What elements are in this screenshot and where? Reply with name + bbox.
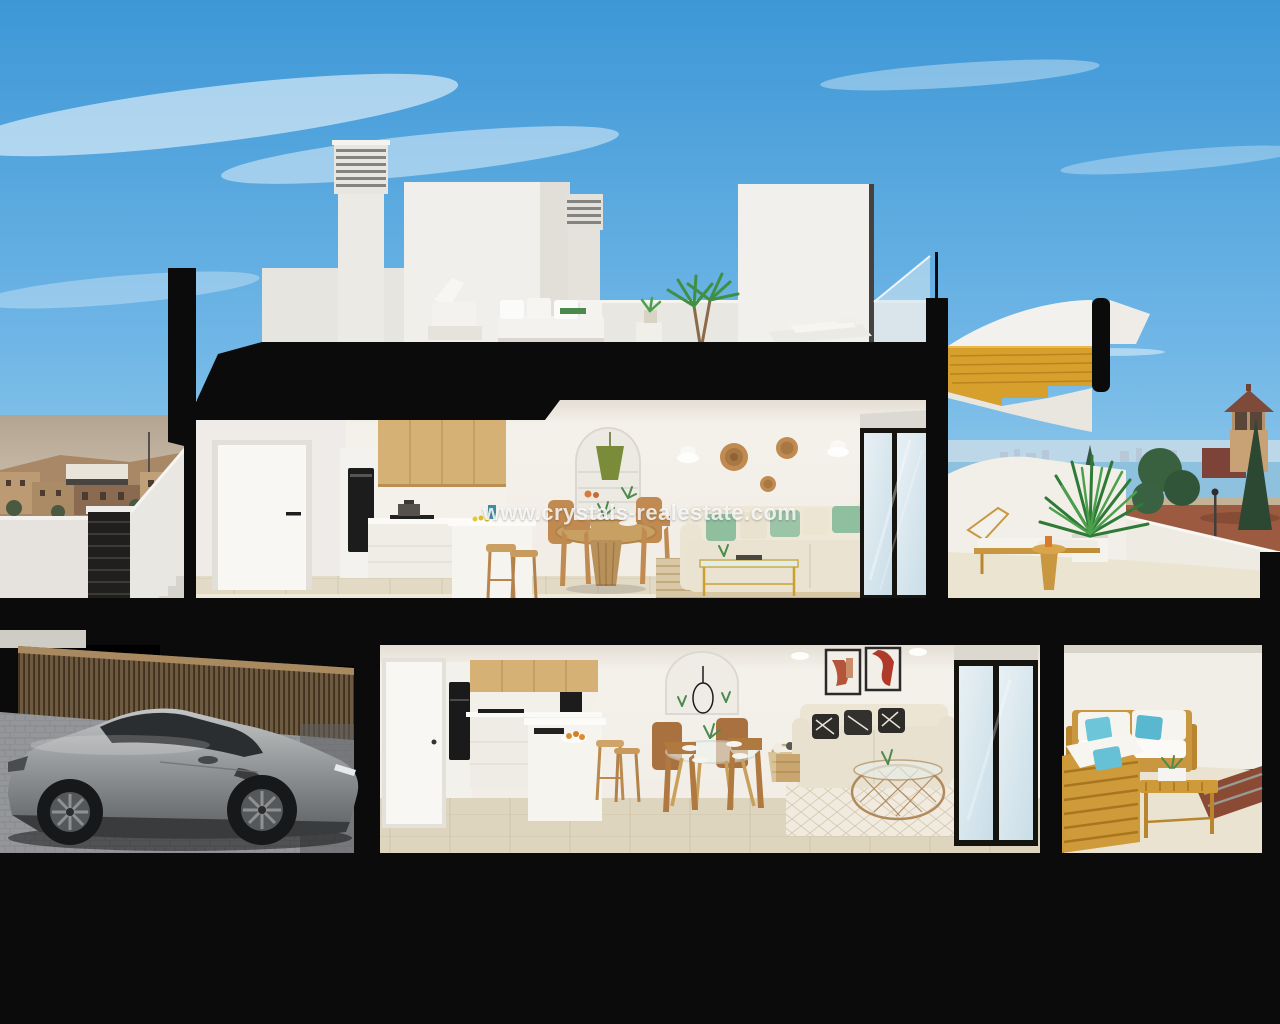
art-frame-1: [826, 650, 860, 694]
table-planter: [1158, 768, 1186, 781]
car-mirror: [198, 756, 218, 764]
car-rear-wheel: [37, 779, 103, 845]
cut-mid-slab: [0, 598, 1280, 645]
car-front-wheel: [227, 775, 297, 845]
cut-stair-column: [1092, 298, 1110, 392]
sconce-ground-left: [791, 652, 809, 660]
render-image: www.crystals-realestate.com: [0, 0, 1280, 1024]
ground-patio: [1062, 645, 1262, 853]
teal-vase: [488, 505, 496, 519]
hall-door: [382, 658, 446, 828]
arch-niche-ground: [666, 652, 738, 714]
chimney-left: [332, 140, 390, 346]
coffee-machine: [560, 692, 582, 712]
cut-mid-column: [926, 298, 948, 600]
sconce-ground-right: [909, 648, 927, 656]
art-frame-2: [866, 648, 900, 690]
upper-sliding-door: [860, 410, 930, 600]
louver-gate: [88, 512, 132, 606]
ground-sliding-door: [954, 645, 1038, 846]
double-oven: [449, 682, 470, 760]
cut-right-edge: [1260, 552, 1280, 856]
kitchen-island: [452, 526, 532, 600]
upper-floor: [196, 400, 936, 600]
cross-section-scene: [0, 0, 1280, 1024]
island-sink: [534, 728, 564, 734]
ground-floor: [380, 645, 1040, 853]
patio-sofa-side: [1062, 733, 1144, 853]
entry-door: [212, 440, 312, 590]
cut-ground-slab: [0, 853, 1280, 1024]
cut-patio-column: [1040, 640, 1064, 856]
cut-garage-divider: [354, 636, 380, 856]
cooktop-ground: [478, 709, 524, 713]
door-handle: [286, 512, 301, 516]
wood-crate: [776, 754, 800, 782]
